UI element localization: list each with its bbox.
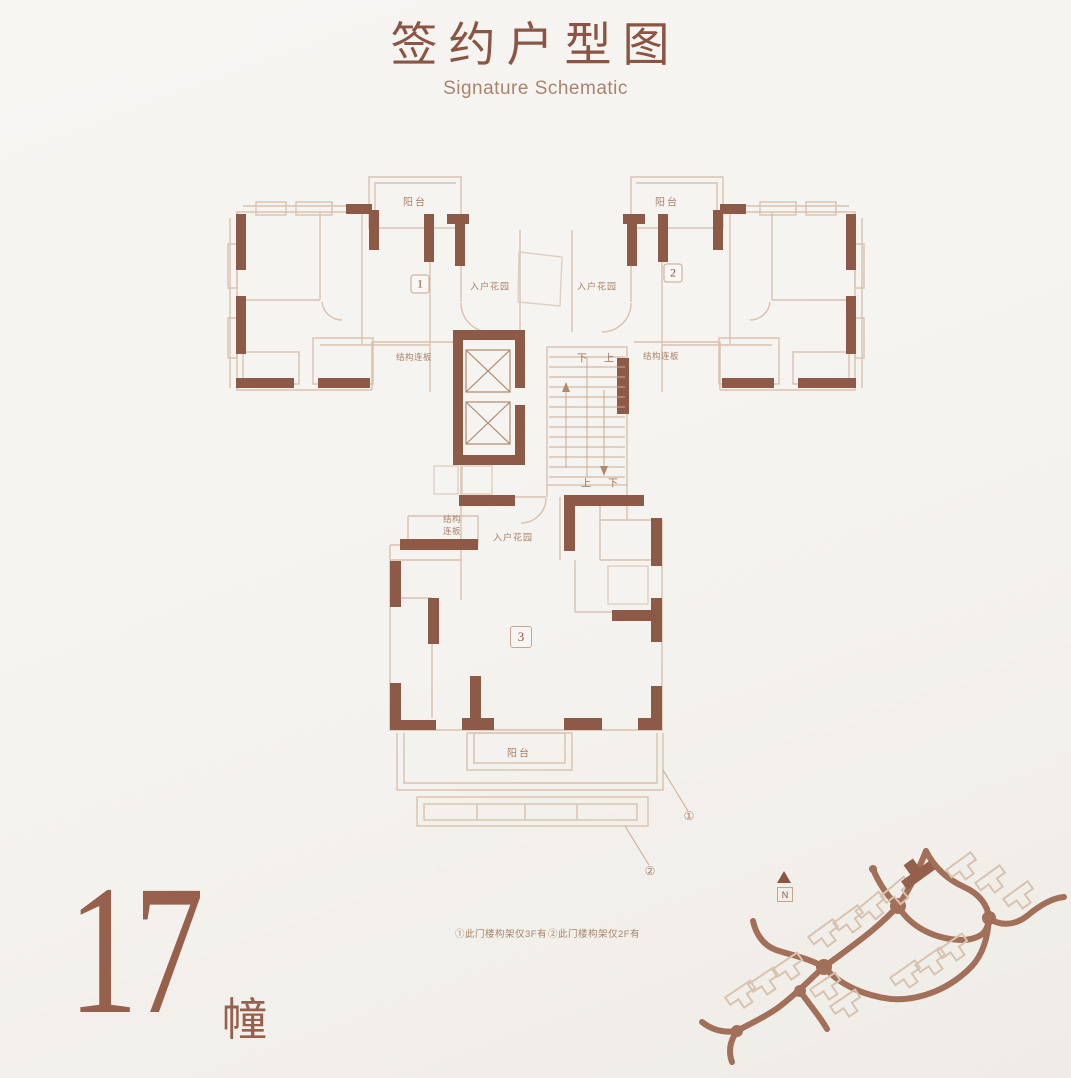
- signature-schematic-page: 签约户型图 Signature Schematic: [0, 0, 1071, 1078]
- walls-dark: [236, 204, 856, 730]
- north-arrow-icon: [777, 871, 791, 883]
- stair-down-label-top: 下: [577, 350, 587, 365]
- callout-leader-lines: [625, 770, 688, 865]
- site-map-roads: [702, 851, 1064, 1062]
- unit-1-badge: 1: [411, 275, 430, 294]
- north-label-box: N: [777, 887, 793, 902]
- stair-up-label-top: 上: [604, 350, 614, 365]
- structural-slab-label-bottom-line1: 结构: [443, 513, 461, 525]
- building-number: 17: [68, 868, 199, 1035]
- balcony-label-left: 阳台: [403, 194, 427, 209]
- footnote-1: ①此门楼构架仅3F有: [455, 926, 547, 940]
- stair-up-label-bottom: 上: [581, 475, 591, 490]
- structural-slab-label-right: 结构连板: [643, 350, 679, 362]
- north-label: N: [782, 890, 789, 900]
- footnote-2: ②此门楼构架仅2F有: [548, 926, 640, 940]
- building-number-suffix: 幢: [222, 983, 267, 1048]
- structural-slab-label-bottom: 结构 连板: [443, 513, 461, 537]
- entry-garden-label-left: 入户花园: [470, 280, 510, 293]
- callout-2-mark: ②: [645, 864, 656, 878]
- stair-down-label-bottom: 下: [608, 475, 618, 490]
- entry-garden-label-right: 入户花园: [577, 280, 617, 293]
- unit-3-badge: 3: [510, 626, 532, 648]
- balcony-label-bottom: 阳台: [507, 745, 531, 760]
- elevator-icons: [466, 350, 510, 444]
- walls-light: [228, 177, 864, 826]
- stair-arrows: [562, 382, 608, 476]
- stair-treads: [549, 357, 625, 477]
- structural-slab-label-left: 结构连板: [396, 351, 432, 363]
- unit-2-badge: 2: [664, 264, 683, 283]
- callout-1-mark: ①: [684, 809, 695, 823]
- balcony-label-right: 阳台: [655, 194, 679, 209]
- entry-garden-label-bottom: 入户花园: [493, 531, 533, 544]
- structural-slab-label-bottom-line2: 连板: [443, 525, 461, 537]
